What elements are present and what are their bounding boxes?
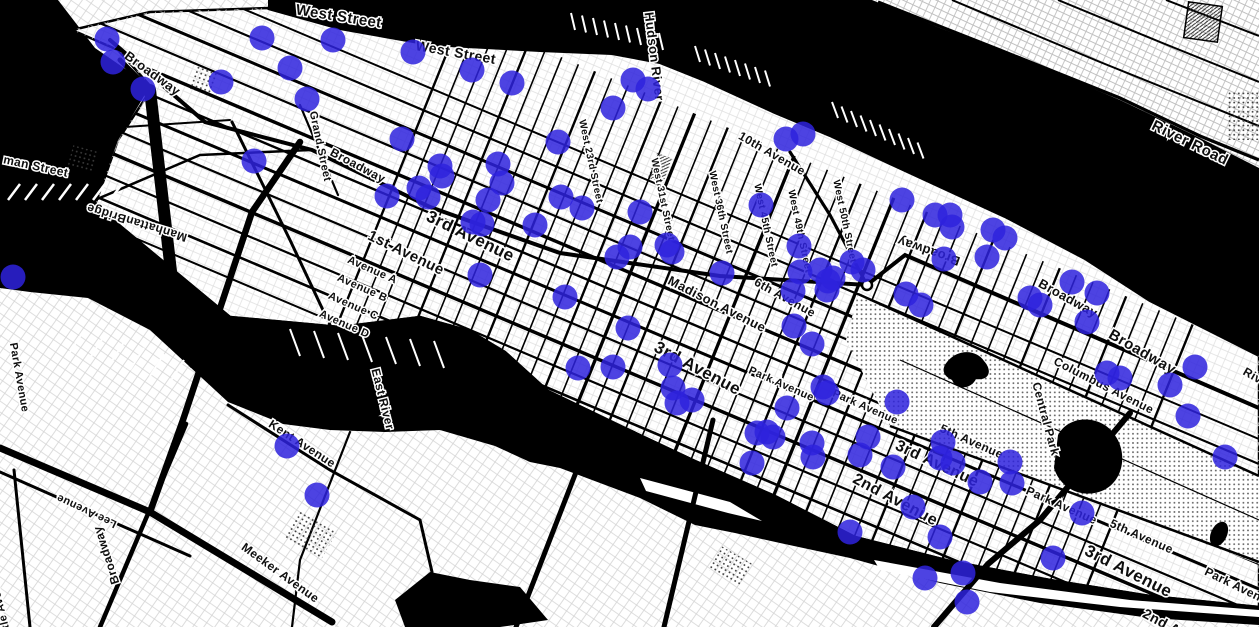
poi-dot[interactable] [885,390,910,415]
poi-dot[interactable] [1176,404,1201,429]
poi-dot[interactable] [740,451,765,476]
poi-dot[interactable] [749,193,774,218]
poi-dot[interactable] [500,71,525,96]
poi-dot[interactable] [1075,310,1100,335]
poi-dot[interactable] [546,130,571,155]
poi-dot[interactable] [476,188,501,213]
city-map: West StreetWest StreetHudson RiverRiver … [0,0,1259,627]
poi-dot[interactable] [781,279,806,304]
poi-dot[interactable] [1158,373,1183,398]
poi-dot[interactable] [951,561,976,586]
poi-dot[interactable] [1183,355,1208,380]
poi-dot[interactable] [242,149,267,174]
poi-dot[interactable] [1213,445,1238,470]
poi-dot[interactable] [665,391,690,416]
poi-dot[interactable] [636,77,661,102]
poi-dot[interactable] [815,381,840,406]
poi-dot[interactable] [250,26,275,51]
poi-dot[interactable] [416,185,441,210]
poi-dot[interactable] [881,455,906,480]
poi-dot[interactable] [993,226,1018,251]
poi-dot[interactable] [95,27,120,52]
poi-dot[interactable] [401,40,426,65]
poi-dot[interactable] [660,240,685,265]
poi-dot[interactable] [523,213,548,238]
poi-dot[interactable] [801,445,826,470]
poi-dot[interactable] [305,483,330,508]
poi-dot[interactable] [940,215,965,240]
poi-dot[interactable] [1070,501,1095,526]
poi-dot[interactable] [605,245,630,270]
poi-dot[interactable] [848,443,873,468]
poi-dot[interactable] [321,28,346,53]
poi-dot[interactable] [800,332,825,357]
poi-dot[interactable] [460,58,485,83]
poi-dot[interactable] [1060,270,1085,295]
poi-dot[interactable] [782,314,807,339]
poi-dot[interactable] [553,285,578,310]
poi-dot[interactable] [601,355,626,380]
poi-dot[interactable] [941,451,966,476]
poi-dot[interactable] [628,200,653,225]
poi-dot[interactable] [658,353,683,378]
poi-dot[interactable] [955,590,980,615]
poi-dot[interactable] [566,356,591,381]
poi-dot[interactable] [1108,366,1133,391]
poi-dot[interactable] [1000,471,1025,496]
poi-dot[interactable] [913,566,938,591]
poi-dot[interactable] [601,96,626,121]
poi-dot[interactable] [787,234,812,259]
poi-dot[interactable] [775,396,800,421]
poi-dot[interactable] [616,316,641,341]
poi-dot[interactable] [816,269,841,294]
poi-dot[interactable] [275,434,300,459]
poi-dot[interactable] [838,520,863,545]
poi-dot[interactable] [375,184,400,209]
poi-dot[interactable] [761,425,786,450]
pier-building [1184,2,1223,42]
poi-dot[interactable] [468,263,493,288]
poi-dot[interactable] [1085,281,1110,306]
poi-dot[interactable] [890,188,915,213]
poi-dot[interactable] [1,265,26,290]
poi-dot[interactable] [928,525,953,550]
poi-dot[interactable] [390,127,415,152]
poi-dot[interactable] [470,212,495,237]
poi-dot[interactable] [710,261,735,286]
poi-dot[interactable] [909,293,934,318]
poi-dot[interactable] [295,87,320,112]
map-canvas[interactable]: West StreetWest StreetHudson RiverRiver … [0,0,1259,627]
poi-dot[interactable] [975,245,1000,270]
poi-dot[interactable] [791,122,816,147]
poi-dot[interactable] [101,50,126,75]
poi-dot[interactable] [901,495,926,520]
poi-dot[interactable] [1028,293,1053,318]
poi-dot[interactable] [932,247,957,272]
poi-dot[interactable] [851,258,876,283]
poi-dot[interactable] [968,470,993,495]
poi-dot[interactable] [430,164,455,189]
poi-dot[interactable] [570,196,595,221]
poi-dot[interactable] [278,56,303,81]
poi-dot[interactable] [1041,546,1066,571]
poi-dot[interactable] [209,70,234,95]
poi-dot[interactable] [131,77,156,102]
